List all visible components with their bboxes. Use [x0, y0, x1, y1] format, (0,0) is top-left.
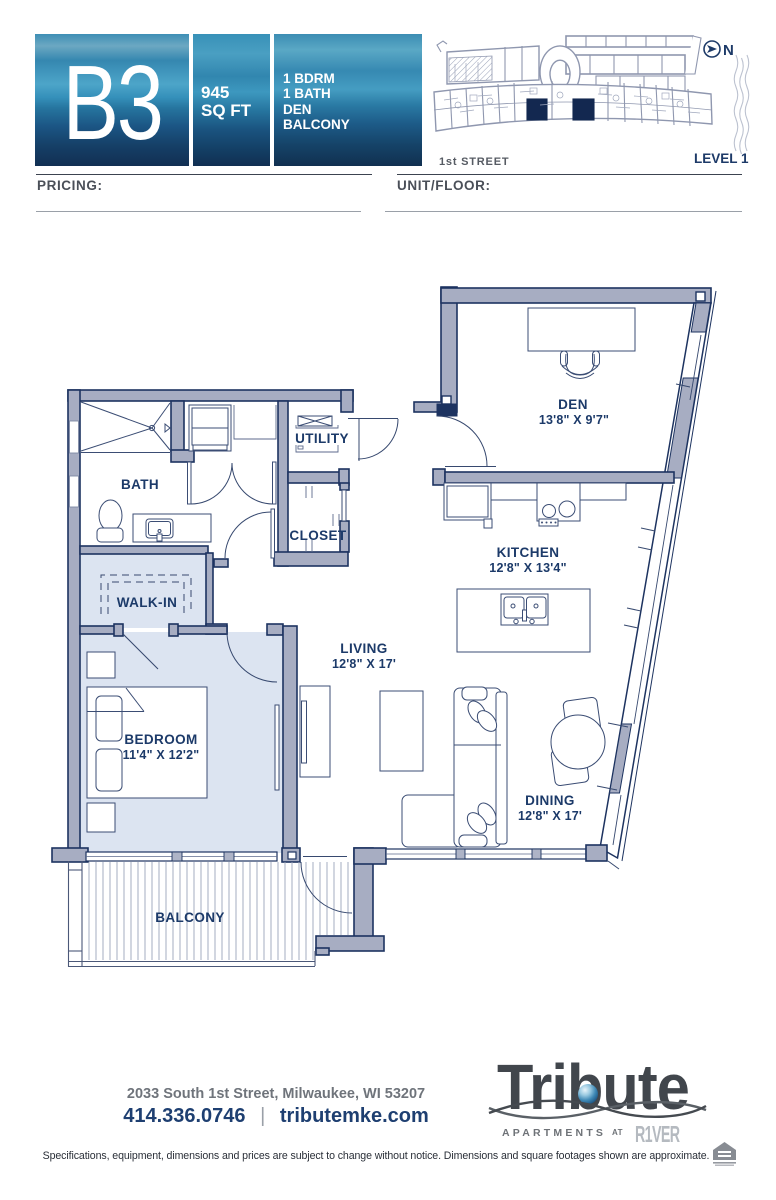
svg-text:R1VER: R1VER — [635, 1123, 680, 1148]
svg-text:APARTMENTS: APARTMENTS — [502, 1127, 606, 1139]
svg-text:AT: AT — [612, 1128, 623, 1137]
